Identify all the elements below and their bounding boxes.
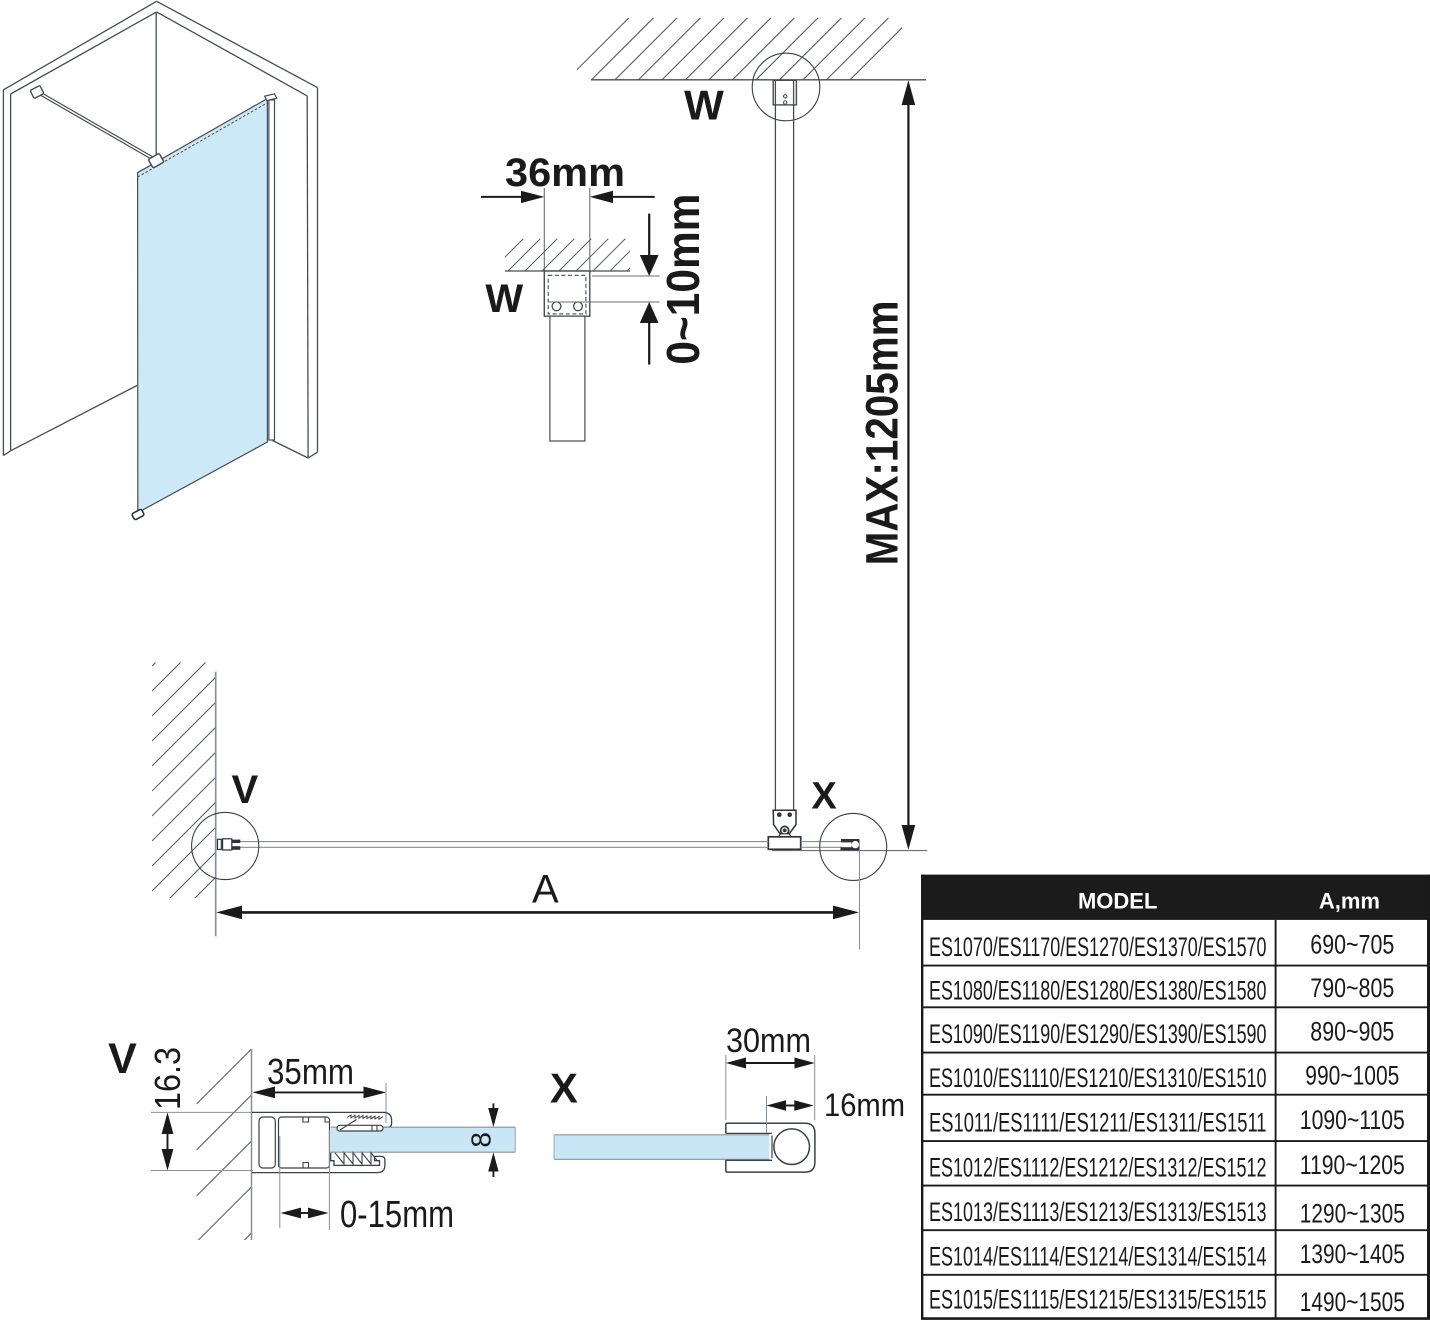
svg-text:890~905: 890~905 xyxy=(1310,1017,1394,1047)
svg-text:1290~1305: 1290~1305 xyxy=(1300,1199,1405,1229)
svg-text:0~10mm: 0~10mm xyxy=(657,194,709,365)
svg-text:8: 8 xyxy=(466,1132,497,1148)
svg-text:ES1013/ES1113/ES1213/ES1313/ES: ES1013/ES1113/ES1213/ES1313/ES1513 xyxy=(929,1197,1267,1227)
svg-text:16mm: 16mm xyxy=(824,1087,905,1123)
svg-text:ES1011/ES1111/ES1211/ES1311/ES: ES1011/ES1111/ES1211/ES1311/ES1511 xyxy=(929,1108,1267,1138)
svg-text:ES1014/ES1114/ES1214/ES1314/ES: ES1014/ES1114/ES1214/ES1314/ES1514 xyxy=(929,1242,1267,1272)
svg-text:36mm: 36mm xyxy=(505,151,625,195)
svg-text:ES1015/ES1115/ES1215/ES1315/ES: ES1015/ES1115/ES1215/ES1315/ES1515 xyxy=(929,1284,1267,1314)
svg-text:30mm: 30mm xyxy=(726,1022,811,1060)
svg-text:1090~1105: 1090~1105 xyxy=(1300,1105,1405,1135)
svg-text:990~1005: 990~1005 xyxy=(1305,1061,1399,1091)
svg-text:ES1012/ES1112/ES1212/ES1312/ES: ES1012/ES1112/ES1212/ES1312/ES1512 xyxy=(929,1153,1267,1183)
svg-text:ES1090/ES1190/ES1290/ES1390/ES: ES1090/ES1190/ES1290/ES1390/ES1590 xyxy=(929,1019,1267,1049)
svg-text:A: A xyxy=(532,868,559,912)
svg-text:X: X xyxy=(811,776,837,818)
svg-text:1390~1405: 1390~1405 xyxy=(1300,1239,1405,1269)
svg-text:0-15mm: 0-15mm xyxy=(340,1194,454,1236)
svg-text:W: W xyxy=(684,82,724,129)
svg-text:V: V xyxy=(232,768,259,812)
svg-text:ES1010/ES1110/ES1210/ES1310/ES: ES1010/ES1110/ES1210/ES1310/ES1510 xyxy=(929,1063,1267,1093)
svg-text:1190~1205: 1190~1205 xyxy=(1300,1150,1405,1180)
svg-text:X: X xyxy=(550,1065,578,1112)
svg-text:MAX:1205mm: MAX:1205mm xyxy=(857,300,908,565)
svg-text:ES1080/ES1180/ES1280/ES1380/ES: ES1080/ES1180/ES1280/ES1380/ES1580 xyxy=(929,976,1267,1006)
svg-text:790~805: 790~805 xyxy=(1310,973,1394,1003)
svg-text:35mm: 35mm xyxy=(267,1051,354,1092)
svg-text:ES1070/ES1170/ES1270/ES1370/ES: ES1070/ES1170/ES1270/ES1370/ES1570 xyxy=(929,932,1267,962)
svg-text:W: W xyxy=(485,277,523,321)
svg-text:16.3: 16.3 xyxy=(147,1047,188,1110)
svg-text:V: V xyxy=(108,1035,137,1083)
svg-text:1490~1505: 1490~1505 xyxy=(1300,1287,1405,1317)
svg-text:MODEL: MODEL xyxy=(1078,889,1157,914)
svg-text:690~705: 690~705 xyxy=(1310,930,1394,960)
svg-text:A,mm: A,mm xyxy=(1319,889,1380,914)
